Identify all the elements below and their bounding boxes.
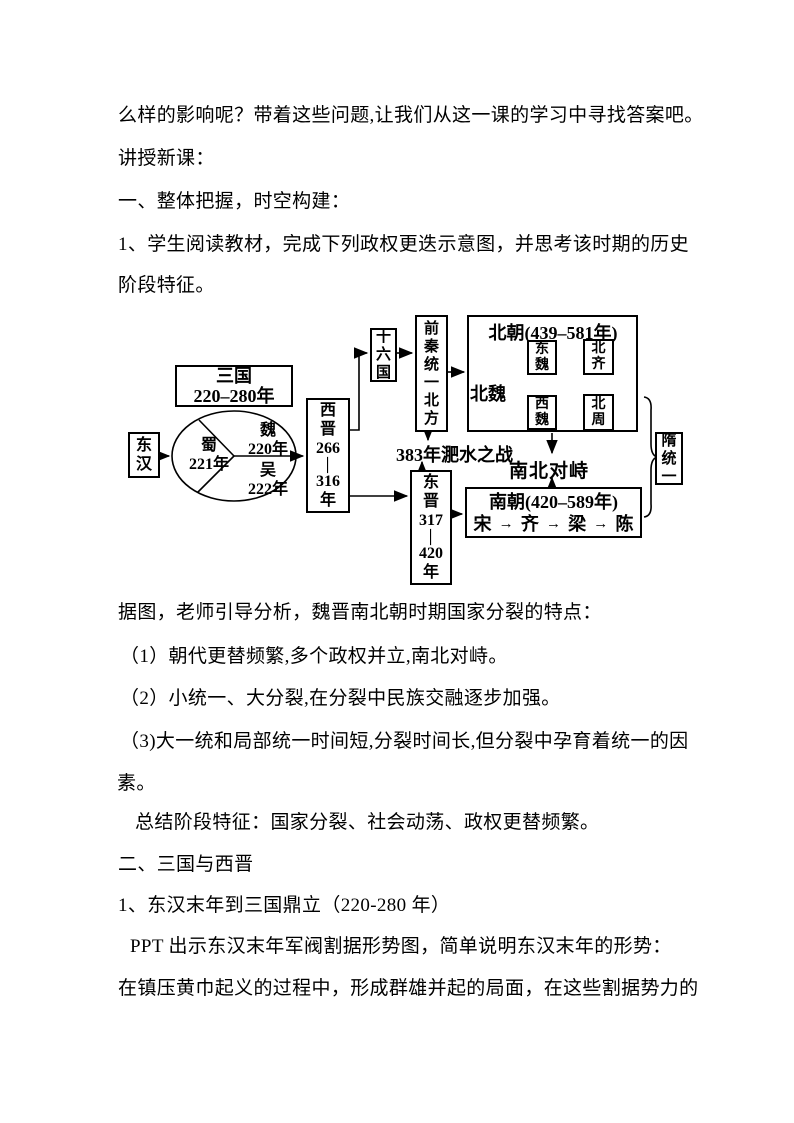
box-text-segment: 一	[661, 468, 676, 486]
wei-year: 220年	[240, 440, 296, 459]
right-arrow-icon: →	[593, 513, 608, 535]
box-northern-qi: 北齐	[583, 339, 614, 375]
pie-sector-wei: 魏 220年	[240, 421, 296, 459]
box-eastern-jin: 东晋317—420年	[410, 470, 452, 585]
battle-of-feishui-label: 383年淝水之战	[396, 441, 513, 467]
box-northern-zhou: 北周	[583, 394, 614, 431]
north-south-standoff-label: 南北对峙	[509, 456, 589, 483]
diagram-connectors	[0, 0, 794, 1123]
box-eastern-han: 东汉	[128, 432, 160, 478]
dynasty-name: 齐	[521, 513, 539, 535]
southern-dynasties-sequence: 宋→齐→梁→陈	[474, 513, 634, 535]
box-text-segment: 晋	[423, 492, 439, 511]
box-text-segment: 六	[376, 346, 391, 364]
box-text-segment: 周	[592, 413, 606, 429]
box-text-segment: 秦	[424, 338, 439, 356]
wu-name: 吴	[240, 461, 296, 480]
box-text-segment: 汉	[136, 455, 152, 474]
box-text-segment: 统	[661, 450, 676, 468]
box-three-kingdoms: 三国 220–280年	[175, 365, 293, 407]
pie-sector-wu: 吴 222年	[240, 461, 296, 499]
box-text-segment: 年	[320, 491, 336, 510]
box-text-segment: 420	[419, 544, 443, 563]
box-text-segment: 统	[424, 356, 439, 374]
right-arrow-icon: →	[499, 513, 514, 535]
northern-wei-label: 北魏	[470, 380, 506, 406]
box-text-segment: 魏	[535, 358, 549, 374]
box-text-segment: —	[424, 529, 438, 545]
box-text-segment: 北	[592, 397, 606, 413]
three-kingdoms-years: 220–280年	[194, 386, 275, 406]
box-text-segment: 晋	[320, 420, 336, 439]
document-page: 么样的影响呢？带着这些问题,让我们从这一课的学习中寻找答案吧。 讲授新课： 一、…	[0, 0, 794, 1123]
box-text-segment: 方	[424, 410, 439, 428]
box-southern-dynasties: 南朝(420–589年) 宋→齐→梁→陈	[465, 487, 642, 538]
southern-dynasties-title: 南朝(420–589年)	[489, 491, 618, 513]
box-text-segment: 北	[424, 392, 439, 410]
dynasty-succession-diagram: 东汉 三国 220–280年 蜀 221年 魏 220年 吴 222年 西晋26…	[0, 0, 794, 1123]
box-text-segment: 一	[424, 374, 439, 392]
shu-name: 蜀	[183, 436, 235, 455]
dynasty-name: 陈	[615, 513, 633, 535]
box-text-segment: —	[321, 457, 335, 473]
box-text-segment: 十	[376, 328, 391, 346]
box-text-segment: 西	[320, 401, 336, 420]
three-kingdoms-title: 三国	[216, 366, 252, 386]
box-text-segment: 东	[535, 342, 549, 358]
box-text-segment: 北	[592, 341, 606, 357]
right-arrow-icon: →	[546, 513, 561, 535]
box-text-segment: 316	[316, 472, 340, 491]
dynasty-name: 宋	[474, 513, 492, 535]
box-text-segment: 国	[376, 364, 391, 382]
box-text-segment: 317	[419, 511, 443, 530]
box-text-segment: 东	[136, 436, 152, 455]
pie-sector-shu: 蜀 221年	[183, 436, 235, 474]
shu-year: 221年	[183, 455, 235, 474]
box-text-segment: 前	[424, 320, 439, 338]
box-western-wei: 西魏	[527, 395, 557, 430]
box-text-segment: 魏	[535, 413, 549, 429]
box-text-segment: 齐	[592, 357, 606, 373]
box-text-segment: 东	[423, 473, 439, 492]
box-sui-unification: 隋统一	[655, 432, 683, 485]
box-text-segment: 年	[423, 563, 439, 582]
box-text-segment: 266	[316, 439, 340, 458]
dynasty-name: 梁	[568, 513, 586, 535]
box-eastern-wei: 东魏	[527, 340, 557, 375]
box-text-segment: 西	[535, 397, 549, 413]
wei-name: 魏	[240, 421, 296, 440]
wu-year: 222年	[240, 480, 296, 499]
box-text-segment: 隋	[661, 432, 676, 450]
box-sixteen-kingdoms: 十六国	[370, 328, 397, 382]
box-western-jin: 西晋266—316年	[306, 398, 350, 513]
box-former-qin: 前秦统一北方	[415, 315, 448, 432]
